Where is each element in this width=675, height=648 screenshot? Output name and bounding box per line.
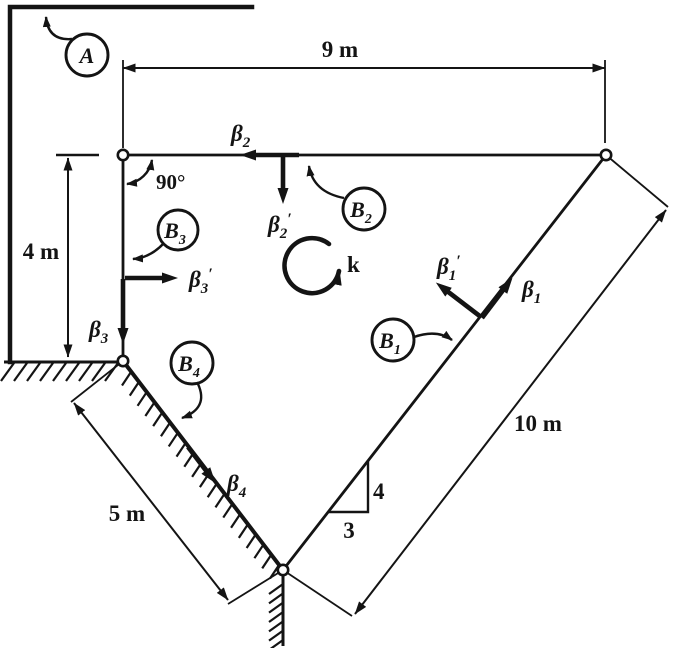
label-beta3: β3 bbox=[88, 317, 109, 347]
label-beta1-prime: β1′ bbox=[436, 253, 461, 284]
leader-B3 bbox=[133, 243, 164, 259]
hatch-stroke bbox=[200, 474, 209, 488]
hatch-stroke bbox=[40, 363, 53, 381]
hatch-stroke bbox=[27, 363, 40, 381]
dim-label-10m: 10 m bbox=[514, 411, 562, 436]
balloon-A: A bbox=[46, 17, 108, 76]
dimension-line bbox=[355, 210, 666, 614]
leader-B1 bbox=[414, 334, 452, 340]
hatch-stroke bbox=[92, 363, 105, 381]
leader-A bbox=[46, 17, 72, 39]
hatch-stroke bbox=[153, 413, 162, 427]
vector-beta1-prime bbox=[447, 291, 481, 317]
extension-line bbox=[606, 155, 668, 207]
hatch-stroke bbox=[262, 555, 271, 569]
hatch-stroke bbox=[177, 443, 186, 457]
leader-B4 bbox=[182, 384, 201, 418]
dimension-10m: 10 m bbox=[283, 155, 668, 616]
dimension-9m: 9 m bbox=[123, 37, 605, 148]
dimension-line bbox=[74, 403, 228, 600]
mechanics-figure: 9 m 4 m 5 m 10 m 4 3 90° bbox=[0, 0, 675, 648]
hatch-stroke bbox=[53, 363, 66, 381]
angle-label: 90° bbox=[156, 170, 185, 194]
hatch-stroke bbox=[269, 621, 283, 631]
balloon-B4: B4 bbox=[171, 342, 213, 418]
dimension-4m: 4 m bbox=[23, 155, 99, 357]
angle-arc bbox=[127, 160, 152, 184]
hatch-stroke bbox=[269, 603, 283, 613]
vector-beta1 bbox=[482, 289, 504, 318]
pin-bottom-left bbox=[118, 356, 128, 366]
extension-line bbox=[71, 361, 123, 402]
hatch-stroke bbox=[14, 363, 27, 381]
hatch-stroke bbox=[66, 363, 79, 381]
pin-top-right bbox=[601, 150, 611, 160]
hatch-stroke bbox=[239, 524, 248, 538]
hatch-stroke bbox=[269, 631, 283, 641]
hatch-stroke bbox=[79, 363, 92, 381]
hatch-stroke bbox=[254, 545, 263, 559]
hatch-bottom-vertex bbox=[269, 584, 283, 648]
hatch-stroke bbox=[223, 504, 232, 517]
hatch-stroke bbox=[122, 372, 131, 386]
label-beta1: β1 bbox=[521, 277, 541, 307]
member-incline-10m bbox=[283, 155, 606, 570]
hatch-stroke bbox=[145, 402, 154, 416]
label-beta2: β2 bbox=[230, 121, 251, 151]
hatch-stroke bbox=[269, 612, 283, 622]
rotation-k: k bbox=[285, 238, 360, 293]
hatch-stroke bbox=[1, 363, 14, 381]
label-beta3-prime: β3′ bbox=[188, 266, 213, 297]
mechanics-diagram-svg: 9 m 4 m 5 m 10 m 4 3 90° bbox=[0, 0, 675, 648]
wall bbox=[1, 7, 252, 381]
hatch-stroke bbox=[161, 423, 170, 437]
dimension-5m: 5 m bbox=[71, 361, 283, 604]
hatch-stroke bbox=[138, 392, 147, 406]
leader-B2 bbox=[309, 166, 344, 198]
dim-label-4m: 4 m bbox=[23, 239, 59, 264]
balloon-B3: B3 bbox=[133, 210, 198, 259]
hatch-stroke bbox=[215, 494, 224, 508]
balloon-label-A: A bbox=[78, 43, 95, 68]
hatch-stroke bbox=[169, 433, 178, 447]
hatch-stroke bbox=[247, 535, 256, 549]
balloon-B2: B2 bbox=[309, 166, 385, 230]
angle-90: 90° bbox=[127, 160, 185, 194]
hatch-stroke bbox=[269, 593, 283, 603]
pin-bottom-vertex bbox=[278, 565, 288, 575]
hatch-stroke bbox=[130, 382, 139, 396]
extension-line bbox=[283, 570, 352, 616]
hatch-stroke bbox=[231, 514, 240, 528]
pin-top-left bbox=[118, 150, 128, 160]
wall-line bbox=[10, 7, 252, 362]
hatch-stroke bbox=[269, 640, 283, 648]
slope-rise-label: 4 bbox=[373, 479, 385, 504]
hatch-stroke bbox=[208, 484, 217, 498]
dim-label-5m: 5 m bbox=[109, 501, 145, 526]
slope-run-label: 3 bbox=[343, 518, 355, 543]
rotation-arrow bbox=[285, 238, 339, 293]
label-beta2-prime: β2′ bbox=[267, 211, 292, 242]
dim-label-9m: 9 m bbox=[322, 37, 358, 62]
balloon-B1: B1 bbox=[372, 319, 452, 361]
hatch-stroke bbox=[269, 584, 283, 594]
k-label: k bbox=[347, 252, 360, 277]
